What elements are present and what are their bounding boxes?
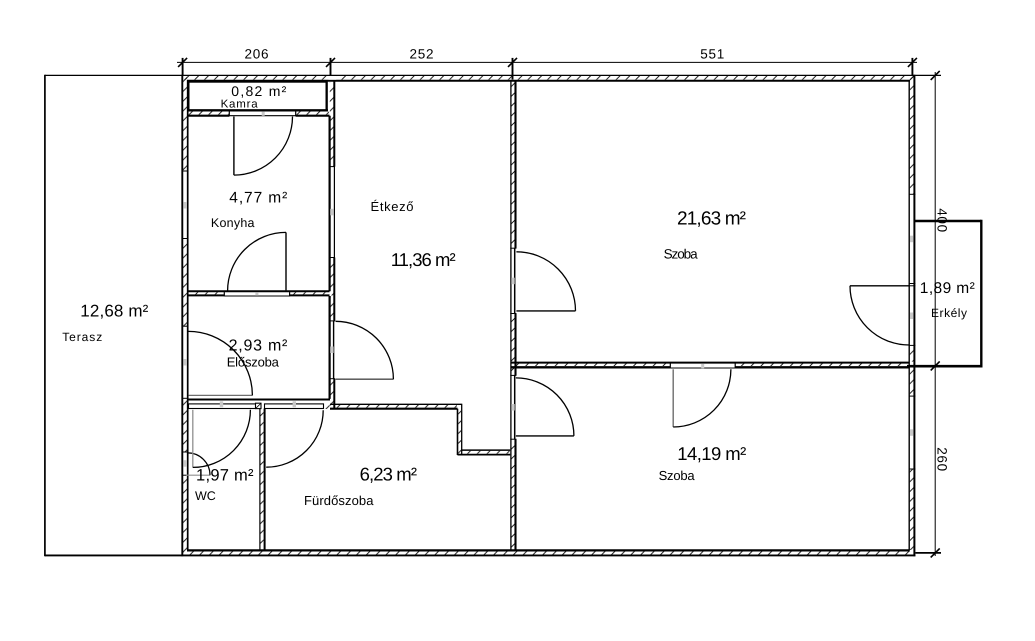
svg-text:206: 206	[245, 46, 269, 61]
svg-text:1,89 m²: 1,89 m²	[920, 280, 975, 297]
svg-text:1,97 m²: 1,97 m²	[196, 466, 254, 484]
svg-text:252: 252	[410, 46, 434, 61]
svg-text:551: 551	[700, 46, 724, 61]
svg-text:WC: WC	[195, 489, 216, 503]
svg-text:Szoba: Szoba	[664, 246, 698, 261]
svg-text:Szoba: Szoba	[659, 468, 696, 483]
svg-text:4,77 m²: 4,77 m²	[229, 189, 287, 206]
svg-text:Fürdőszoba: Fürdőszoba	[304, 493, 374, 508]
svg-text:21,63 m²: 21,63 m²	[677, 209, 746, 230]
svg-text:6,23 m²: 6,23 m²	[360, 464, 417, 485]
svg-text:12,68 m²: 12,68 m²	[80, 302, 148, 321]
svg-text:0,82 m²: 0,82 m²	[231, 83, 286, 99]
svg-text:Terasz: Terasz	[62, 330, 102, 344]
svg-text:Kamra: Kamra	[221, 99, 259, 111]
svg-text:2,93 m²: 2,93 m²	[229, 338, 288, 355]
svg-text:Előszoba: Előszoba	[227, 355, 280, 370]
svg-text:14,19 m²: 14,19 m²	[677, 443, 746, 464]
svg-text:Konyha: Konyha	[211, 216, 255, 230]
svg-text:Erkély: Erkély	[931, 306, 967, 320]
svg-text:260: 260	[935, 447, 950, 471]
svg-text:11,36 m²: 11,36 m²	[391, 249, 456, 270]
svg-text:Étkező: Étkező	[371, 199, 414, 214]
